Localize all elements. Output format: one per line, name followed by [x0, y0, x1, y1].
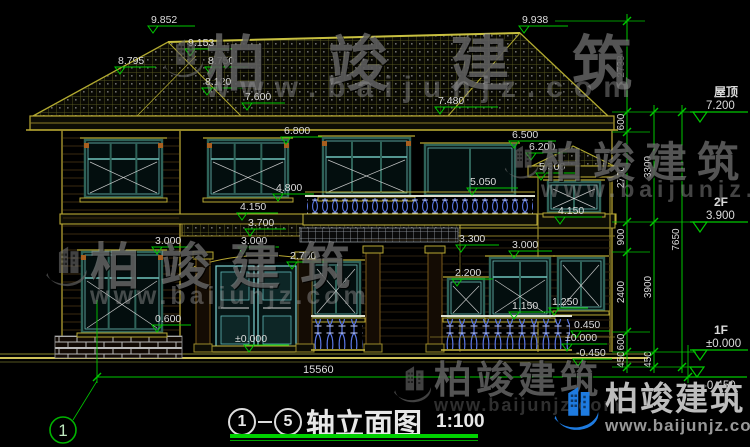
- dimension-text: 1.150: [512, 300, 538, 312]
- elevation-marker: 3.000: [238, 235, 279, 254]
- level-marker: 屋顶7.200: [690, 85, 748, 122]
- column: [295, 252, 315, 352]
- dimension-text: ±0.000: [565, 332, 597, 344]
- level-marker: -0.450: [687, 367, 747, 392]
- dimension-text: 600: [616, 333, 627, 350]
- dimension-text: 900: [616, 228, 627, 245]
- level-name: 1F: [714, 323, 728, 337]
- dimension-text: 4.150: [240, 201, 266, 213]
- balcony-balustrade: [303, 192, 537, 225]
- dimension-text: 7.200: [706, 100, 735, 112]
- elevation-marker: 9.852: [148, 14, 195, 33]
- axis-start-bubble: 1: [228, 408, 256, 436]
- vertical-dimension: 450: [643, 351, 654, 368]
- dimension-text: 6.800: [284, 125, 310, 137]
- axis-bubble: 1: [50, 381, 97, 443]
- elevation-drawing: 9.8529.9389.1538.7508.1207.6008.7957.480…: [0, 0, 750, 447]
- dimension-text: 4.800: [276, 182, 302, 194]
- window-1f-porch: [307, 260, 365, 322]
- dimension-text: 9.852: [151, 14, 177, 26]
- dimension-text: 3300: [643, 155, 654, 178]
- dimension-text: 3.000: [155, 235, 181, 247]
- dimension-text: 2.700: [290, 250, 316, 262]
- drawing-scale: 1:100: [436, 411, 485, 433]
- dimension-text: 5.050: [470, 176, 496, 188]
- dimension-text: 3.000: [241, 235, 267, 247]
- dimension-text: 7.600: [245, 91, 271, 103]
- dimension-text: 3.900: [706, 210, 735, 222]
- elevation-marker: 9.938: [519, 14, 568, 33]
- column: [425, 246, 445, 352]
- dimension-text: 5.300: [539, 161, 565, 173]
- column: [363, 246, 383, 352]
- vertical-dimension: 600: [616, 113, 627, 130]
- dimension-chain: [650, 105, 658, 373]
- column: [193, 252, 213, 352]
- dimension-text: 3900: [643, 275, 654, 298]
- title-underline-thin: [230, 440, 478, 441]
- dimension-text: 450: [643, 351, 654, 368]
- dimension-text: 1.250: [552, 296, 578, 308]
- dimension-text: 7650: [671, 228, 682, 251]
- dimension-text: -0.450: [576, 347, 606, 359]
- axis-end-bubble: 5: [274, 408, 302, 436]
- elevation-marker: -0.450: [573, 347, 612, 366]
- dimension-text: 9.938: [522, 14, 548, 26]
- axis-bubble-label: 1: [58, 421, 67, 440]
- window-1f-left: [77, 250, 167, 337]
- dimension-text: 3.300: [459, 233, 485, 245]
- dimension-text: 0.600: [155, 313, 181, 325]
- dimension-text: 6.500: [512, 129, 538, 141]
- dimension-text: 8.750: [208, 55, 234, 67]
- vertical-dimension: 3300: [643, 155, 654, 178]
- vertical-dimension: 600: [616, 333, 627, 350]
- brick-plinth: [55, 336, 182, 358]
- cad-elevation-screenshot: 9.8529.9389.1538.7508.1207.6008.7957.480…: [0, 0, 750, 447]
- dimension-text: 15560: [303, 364, 334, 376]
- dimension-text: 2.200: [455, 267, 481, 279]
- title-underline: [230, 434, 478, 438]
- vertical-dimension: 7650: [671, 228, 682, 251]
- dimension-text: 6.200: [529, 141, 555, 153]
- vertical-dimension: 3900: [643, 275, 654, 298]
- level-marker: 2F3.900: [690, 195, 748, 232]
- window-2f-left: [80, 138, 167, 202]
- dimension-text: 9.153: [188, 37, 214, 49]
- dimension-text: 2700: [616, 165, 627, 188]
- level-name: 2F: [714, 195, 728, 209]
- dimension-text: 4.150: [558, 205, 584, 217]
- dimension-text: 0.450: [574, 319, 600, 331]
- vertical-dimension: 900: [616, 228, 627, 245]
- dimension-text: ±0.000: [706, 338, 741, 350]
- dimension-text: 8.795: [118, 55, 144, 67]
- dimension-text: 3.700: [248, 217, 274, 229]
- vertical-dimension: 2400: [616, 280, 627, 303]
- main-roof: [33, 33, 608, 116]
- dimension-text: 600: [616, 113, 627, 130]
- dimension-text: ±0.000: [235, 333, 267, 345]
- vertical-dimension: 450: [616, 351, 627, 368]
- vertical-dimension: 2738: [616, 55, 627, 78]
- dimension-text: 3.000: [512, 239, 538, 251]
- axis-range-dash: [258, 421, 272, 423]
- level-name: 屋顶: [714, 85, 738, 99]
- dimension-text: 8.120: [205, 76, 231, 88]
- dimension-text: 2400: [616, 280, 627, 303]
- dimension-text: -0.450: [703, 380, 736, 392]
- dimension-text: 2738: [616, 55, 627, 78]
- window-2f-center: [318, 136, 415, 201]
- vertical-dimension: 2700: [616, 165, 627, 188]
- dimension-text: 7.480: [438, 95, 464, 107]
- main-eave-cornice: [26, 116, 618, 130]
- level-marker: 1F±0.000: [690, 323, 748, 360]
- dimension-text: 450: [616, 351, 627, 368]
